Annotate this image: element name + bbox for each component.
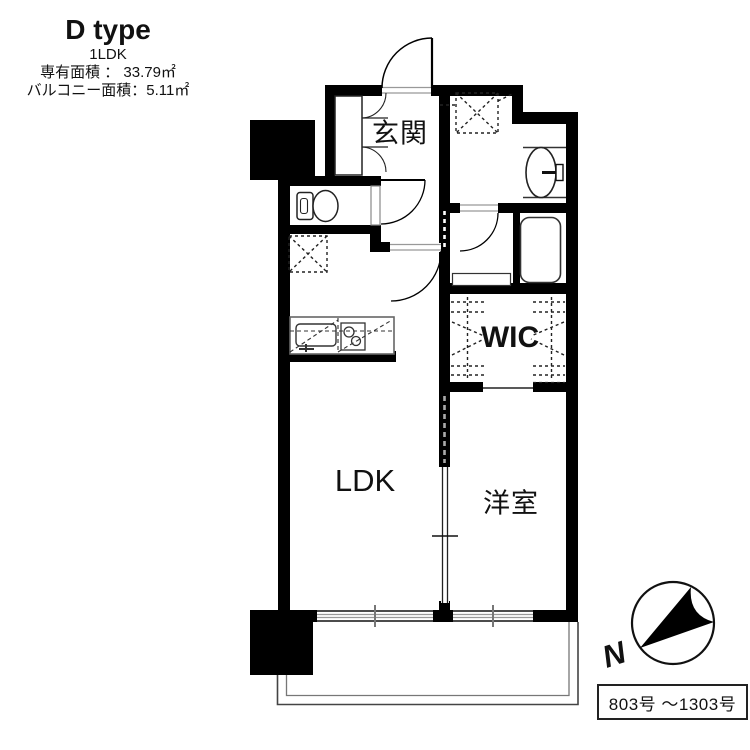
wall-segment xyxy=(278,225,373,234)
wall-segment xyxy=(370,242,390,252)
compass-icon xyxy=(632,582,714,664)
bathroom-door-icon xyxy=(460,213,498,251)
unit-range-box: 803号 ～1303号 xyxy=(597,684,748,720)
floorplan-canvas: D type 1LDK 専有面積 ： 33.79㎡ バルコニー面積：5.11㎡ … xyxy=(0,0,750,750)
toilet-partition xyxy=(371,186,380,225)
wall-segment xyxy=(433,610,453,622)
room-label-western-room: 洋室 xyxy=(483,482,539,521)
wall-segment xyxy=(498,203,567,213)
toilet-room xyxy=(297,186,380,225)
washbasin-icon xyxy=(523,148,566,198)
wall-segment xyxy=(439,85,450,395)
pillar xyxy=(250,610,313,675)
entrance-door-icon xyxy=(382,38,432,88)
washer-space-icon xyxy=(440,93,512,133)
exclusive-area: 専有面積 ： 33.79㎡ xyxy=(8,64,208,82)
wall-segment xyxy=(278,180,290,612)
pillar xyxy=(250,120,315,180)
wall-segment xyxy=(325,92,335,180)
toilet-icon xyxy=(297,191,338,222)
wall-segment xyxy=(533,382,567,392)
room-label-entrance: 玄関 xyxy=(372,112,428,151)
bath-divider-wall xyxy=(513,213,520,283)
hall-ldk-door-icon xyxy=(391,251,441,301)
room-label-wic: WIC xyxy=(481,321,539,355)
wall-segment xyxy=(450,203,460,213)
unit-range-label: 803号 ～1303号 xyxy=(609,690,736,715)
bath-step xyxy=(453,274,511,286)
refrigerator-space-icon xyxy=(289,236,327,272)
toilet-door-icon xyxy=(381,180,425,224)
balcony-area: バルコニー面積：5.11㎡ xyxy=(8,82,208,100)
wall-segment xyxy=(533,610,578,622)
room-label-ldk: LDK xyxy=(335,463,395,499)
window-icon xyxy=(453,605,533,627)
plan-type-title: D type xyxy=(8,14,208,46)
wall-segment xyxy=(278,176,381,186)
sliding-door-icon xyxy=(432,396,458,603)
bathroom xyxy=(453,218,561,286)
wall-segment xyxy=(439,382,483,392)
plan-layout: 1LDK xyxy=(8,46,208,64)
title-block: D type 1LDK 専有面積 ： 33.79㎡ バルコニー面積：5.11㎡ xyxy=(8,14,208,100)
wall-segment xyxy=(566,112,578,622)
window-icon xyxy=(317,605,433,627)
bathtub-icon xyxy=(521,218,561,283)
kitchen-counter-icon xyxy=(290,317,394,354)
wall-segment xyxy=(439,392,450,467)
balcony-outline xyxy=(278,612,579,705)
